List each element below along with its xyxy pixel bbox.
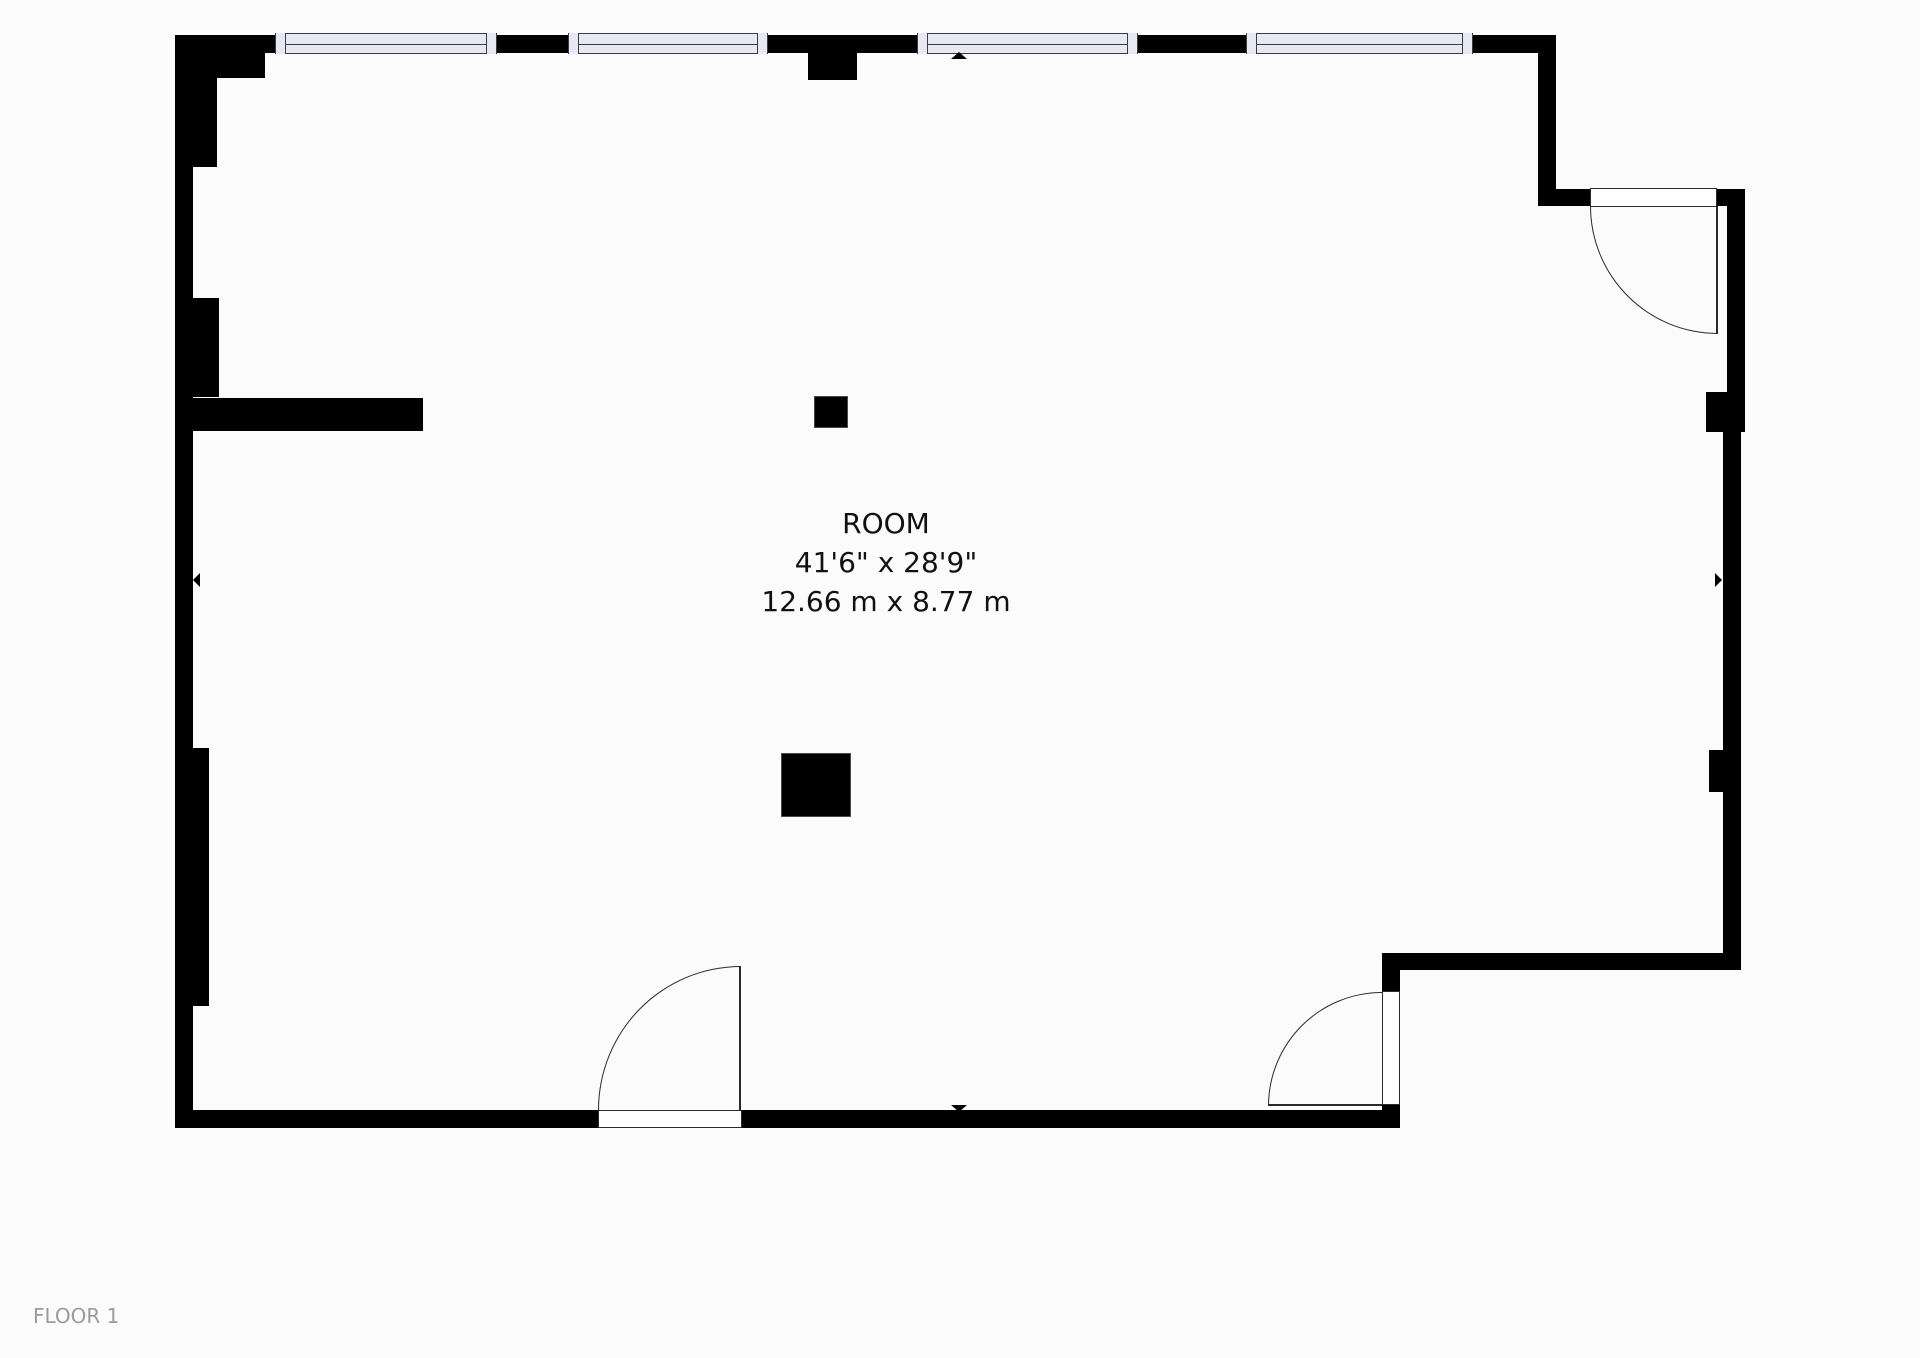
window-mullion (1247, 44, 1472, 45)
door-jamb-bottom-right (1382, 991, 1400, 1105)
floor-label: FLOOR 1 (33, 1304, 119, 1328)
door-swing-arc-bottom-right (1268, 992, 1382, 1106)
wall-right-lower (1723, 412, 1741, 970)
wall-top-right-nib (1538, 189, 1590, 206)
door-swing-arc-bottom-center (598, 966, 741, 1110)
door-leaf-bottom-right (1268, 1104, 1382, 1106)
window-end-cap (568, 33, 579, 54)
wall-left (175, 35, 193, 1128)
window-mullion (569, 44, 767, 45)
room-size-metric: 12.66 m x 8.77 m (486, 582, 1286, 621)
wall-top-stub (808, 53, 857, 80)
wall-bottom (175, 1110, 1400, 1128)
window-end-cap (275, 33, 286, 54)
window-mullion (918, 44, 1137, 45)
wall-left-pilaster-b (193, 748, 209, 1006)
window-end-cap (1127, 33, 1138, 54)
floor-plan-canvas: ROOM 41'6" x 28'9" 12.66 m x 8.77 m FLOO… (0, 0, 1920, 1358)
window-1 (275, 33, 497, 54)
window-4 (1246, 33, 1473, 54)
wall-top-right-vertical (1538, 35, 1556, 206)
door-jamb-bottom-center (598, 1110, 742, 1128)
room-label: ROOM 41'6" x 28'9" 12.66 m x 8.77 m (486, 504, 1286, 621)
door-jamb-top-right (1590, 188, 1717, 207)
dimension-marker-left-icon (193, 573, 200, 587)
window-mullion (276, 44, 496, 45)
room-size-imperial: 41'6" x 28'9" (486, 543, 1286, 582)
wall-bottom-right-horizontal (1382, 953, 1741, 970)
door-leaf-top-right (1716, 206, 1718, 334)
window-end-cap (486, 33, 497, 54)
window-2 (568, 33, 768, 54)
column-small (814, 396, 848, 428)
door-swing-arc-top-right (1590, 206, 1718, 334)
wall-bottom-right-vertical-upper (1382, 970, 1400, 991)
wall-interior-stub (193, 398, 423, 431)
room-name: ROOM (486, 504, 1286, 543)
wall-left-upper-thick (193, 53, 217, 167)
window-end-cap (1462, 33, 1473, 54)
dimension-marker-up-icon (951, 52, 967, 59)
window-end-cap (917, 33, 928, 54)
wall-right-stub-b (1709, 750, 1723, 792)
window-3 (917, 33, 1138, 54)
window-end-cap (757, 33, 768, 54)
door-leaf-bottom-center (739, 966, 741, 1110)
column-large (781, 753, 851, 817)
window-end-cap (1246, 33, 1257, 54)
dimension-marker-right-icon (1715, 573, 1722, 587)
dimension-marker-down-icon (951, 1105, 967, 1112)
wall-right-upper (1727, 189, 1745, 412)
wall-left-pilaster-a (193, 298, 219, 397)
